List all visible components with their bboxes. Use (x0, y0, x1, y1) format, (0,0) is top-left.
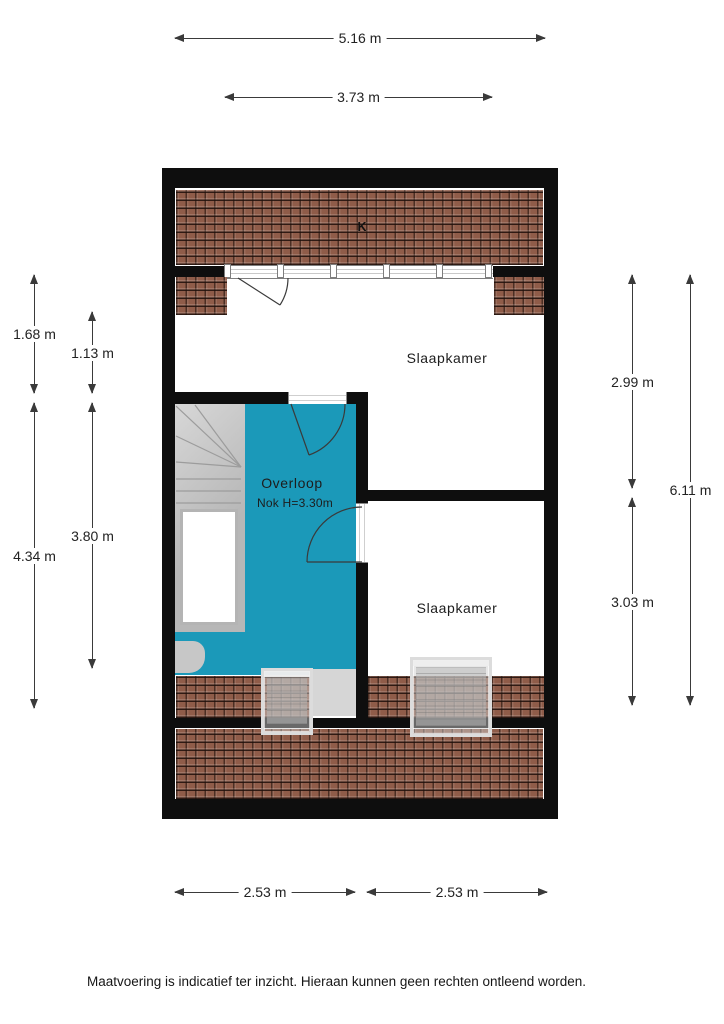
door-opening-bedroom2 (356, 503, 368, 563)
stairwell-void (180, 509, 238, 625)
wall-window-right (493, 266, 544, 277)
dimension-right-2: 3.03 m (632, 498, 633, 705)
wall-outer-bottom (162, 799, 558, 819)
roof-ridge-label: K (354, 220, 370, 234)
knee-wall-floor (312, 669, 358, 716)
skylight-frame (413, 660, 489, 666)
window-post (277, 264, 284, 278)
dimension-top-window: 3.73 m (225, 97, 492, 98)
dimension-left-2: 1.13 m (92, 312, 93, 393)
dimension-label: 3.80 m (66, 528, 119, 544)
wall-overloop-right-a (356, 392, 368, 503)
dimension-left-4: 3.80 m (92, 403, 93, 668)
skylight-frame (264, 671, 310, 677)
wall-outer-top (162, 168, 558, 188)
skylight-glass (267, 678, 307, 724)
dimension-bottom-left: 2.53 m (175, 892, 355, 893)
dimension-right-1: 2.99 m (632, 275, 633, 488)
dimension-label: 4.34 m (8, 548, 61, 564)
dimension-label: 2.99 m (606, 374, 659, 390)
ridge-height-label: Nok H=3.30m (240, 496, 350, 510)
dimension-label: 2.53 m (239, 884, 292, 900)
wall-outer-left (162, 168, 175, 819)
dimension-label: 2.53 m (431, 884, 484, 900)
wall-bedroom-divider (368, 490, 557, 501)
room-label-bedroom2: Slaapkamer (407, 600, 507, 616)
skylight-glass (416, 667, 486, 726)
roof-patch-left (176, 277, 227, 315)
dimension-label: 1.68 m (8, 326, 61, 342)
dimension-label: 3.73 m (332, 89, 385, 105)
dimension-label: 3.03 m (606, 594, 659, 610)
wall-overloop-right-b (356, 563, 368, 718)
skylight-left (261, 668, 313, 735)
roof-patch-right (494, 277, 544, 315)
dimension-label: 5.16 m (334, 30, 387, 46)
dimension-label: 6.11 m (665, 482, 717, 498)
room-label-bedroom1: Slaapkamer (397, 350, 497, 366)
disclaimer-text: Maatvoering is indicatief ter inzicht. H… (87, 974, 586, 989)
window-post (383, 264, 390, 278)
dormer-window (227, 265, 493, 279)
window-post (436, 264, 443, 278)
dimension-right-3: 6.11 m (690, 275, 691, 705)
window-post (330, 264, 337, 278)
wall-overloop-top-a (162, 392, 288, 404)
door-opening-overloop-top (288, 392, 347, 404)
dimension-bottom-right: 2.53 m (367, 892, 547, 893)
wall-eaves (162, 718, 558, 728)
dimension-label: 1.13 m (66, 345, 119, 361)
floorplan-page: K Slaapkamer Slaapkamer Overloop Nok H=3… (0, 0, 724, 1024)
roof-slope-lower (176, 729, 543, 799)
room-label-overloop: Overloop (242, 475, 342, 491)
window-post (485, 264, 492, 278)
dimension-left-1: 1.68 m (34, 275, 35, 393)
window-post (224, 264, 231, 278)
wall-outer-right (544, 168, 558, 819)
wall-window-left (175, 266, 227, 277)
skylight-right (410, 657, 492, 737)
dimension-top-total: 5.16 m (175, 38, 545, 39)
dimension-left-3: 4.34 m (34, 403, 35, 708)
